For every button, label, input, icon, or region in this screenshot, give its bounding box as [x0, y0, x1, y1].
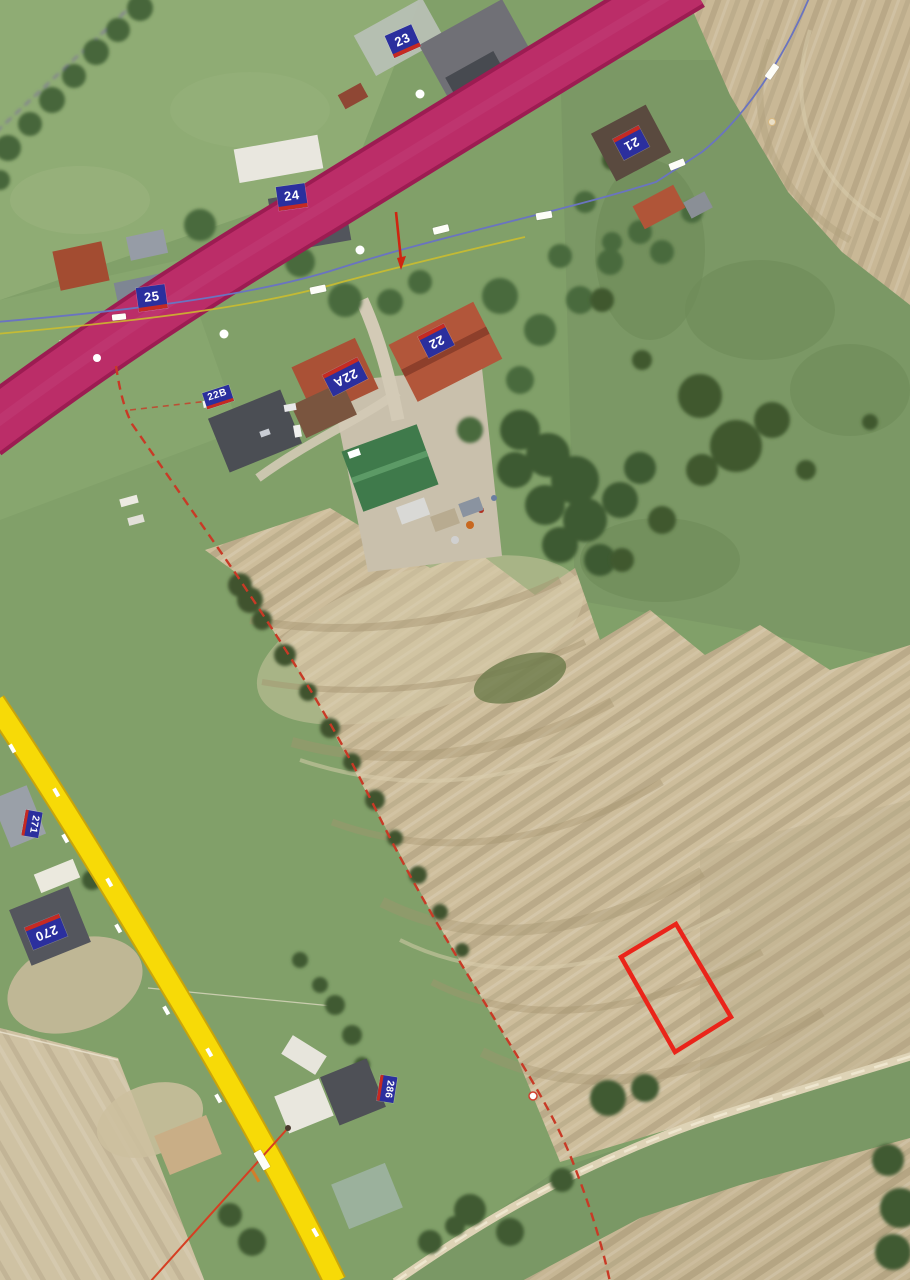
aerial-imagery: [0, 0, 910, 1280]
house-number-label-24[interactable]: 24: [276, 183, 309, 211]
house-number-label-25[interactable]: 25: [136, 284, 169, 312]
map-viewport[interactable]: 23 24 25 22 22A 21 22B 270 271 286: [0, 0, 910, 1280]
